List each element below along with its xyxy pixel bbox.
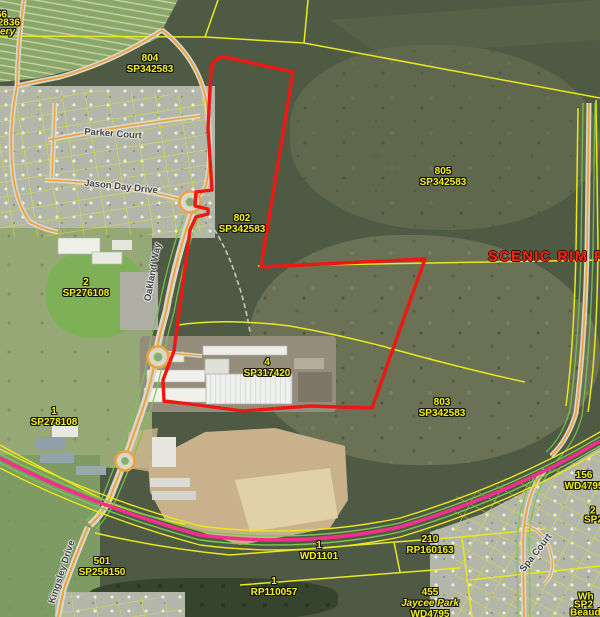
partial-label-right-2: SP2 bbox=[584, 514, 600, 525]
parcel-label-455-jaycee-park: 455 Jaycee Park WD4795 bbox=[401, 587, 459, 617]
parcel-label-1-rp110057: 1RP110057 bbox=[251, 576, 298, 598]
region-name-label: SCENIC RIM R bbox=[488, 249, 600, 265]
parcel-label-804: 804SP342583 bbox=[127, 53, 174, 75]
map-viewport[interactable]: 804SP342583 805SP342583 802SP342583 4SP3… bbox=[0, 0, 600, 617]
lot-grid-northwest bbox=[0, 88, 212, 237]
parcel-label-1-sp278108: 1SP278108 bbox=[31, 406, 78, 428]
map-overlay bbox=[0, 0, 600, 617]
partial-label-bottom-right-3: Beaud bbox=[570, 607, 600, 617]
parcel-label-2: 2SP276108 bbox=[63, 277, 110, 299]
parcel-label-1-wd1101: 1WD1101 bbox=[300, 540, 338, 562]
parcel-label-803: 803SP342583 bbox=[419, 397, 466, 419]
parcel-label-156: 156WD4795 bbox=[565, 470, 600, 492]
partial-label-top-left-3: ery bbox=[0, 26, 15, 37]
lot-grid-south bbox=[58, 593, 185, 617]
roundabout-icon-south bbox=[116, 452, 135, 471]
roundabout-icon-middle bbox=[148, 347, 169, 368]
parcel-label-210: 210RP160163 bbox=[406, 534, 453, 556]
parcel-label-805: 805SP342583 bbox=[420, 166, 467, 188]
parcel-label-4: 4SP317420 bbox=[244, 357, 291, 379]
parcel-label-501: 501SP258150 bbox=[79, 556, 126, 578]
parcel-label-802: 802SP342583 bbox=[219, 213, 266, 235]
